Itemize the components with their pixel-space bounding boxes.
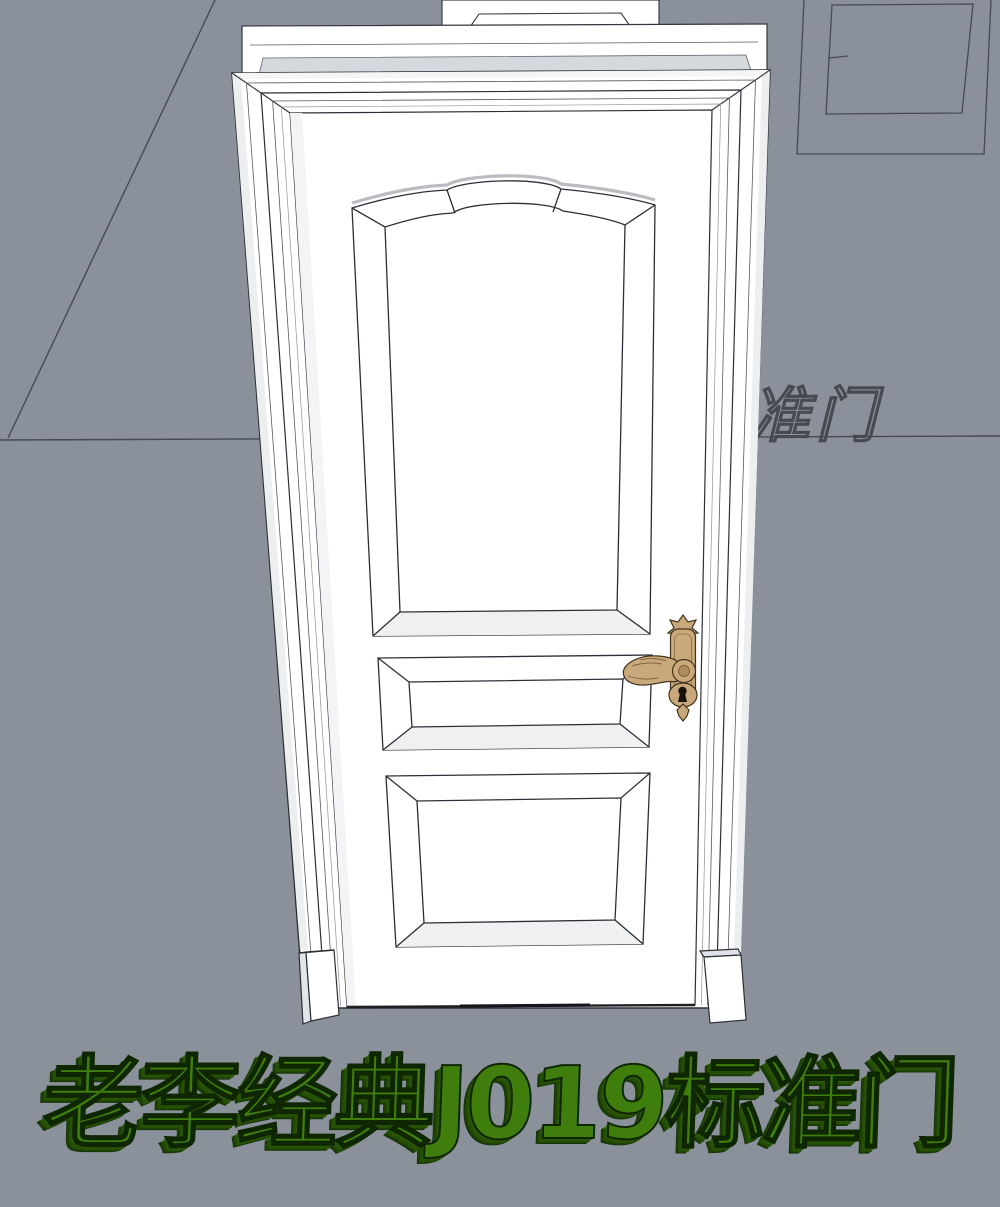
model-viewport[interactable]: 准门 — [0, 0, 1000, 1207]
background-door-outer — [797, 0, 991, 154]
model-title: 老李经典J019标准门 — [0, 1054, 1000, 1154]
background-door-inner — [826, 4, 973, 114]
plinth-left — [299, 950, 339, 1024]
plinth-right — [700, 949, 746, 1023]
background-wireframe-text: 准门 — [750, 381, 884, 451]
background-door-outline — [797, 0, 991, 154]
bottom-panel — [386, 773, 650, 947]
door-render: 准门 — [0, 0, 1000, 1207]
wall-corner-line — [8, 0, 215, 438]
middle-panel — [378, 655, 652, 750]
top-background-block — [442, 0, 659, 28]
